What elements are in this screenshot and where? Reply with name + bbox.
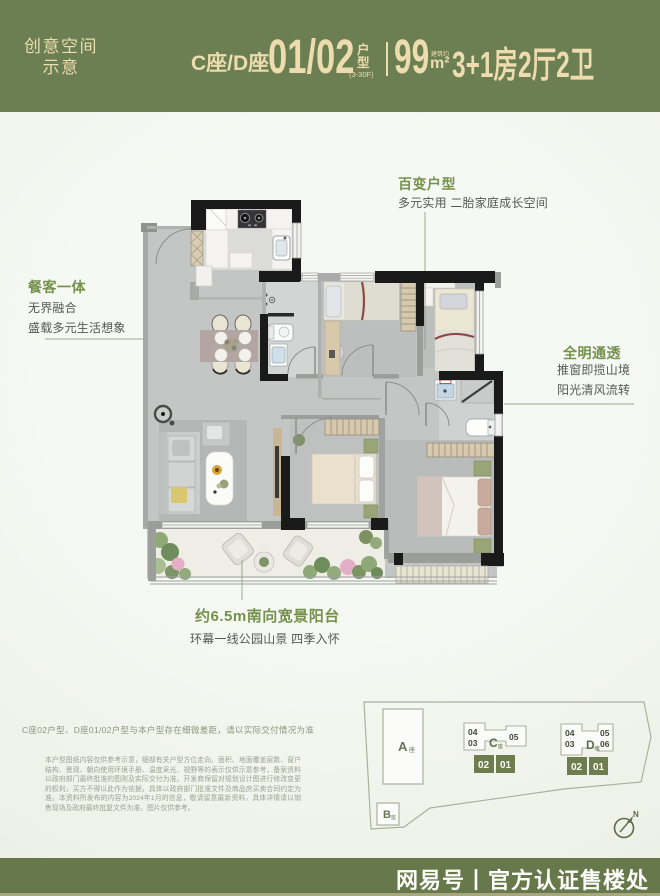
svg-text:B: B [383,809,391,821]
svg-text:A: A [398,739,408,754]
svg-text:03: 03 [565,739,575,749]
svg-text:02: 02 [478,760,490,771]
svg-text:04: 04 [468,727,478,737]
svg-text:06: 06 [600,739,610,749]
svg-text:N: N [633,810,639,819]
svg-text:04: 04 [565,728,575,738]
svg-text:02: 02 [571,762,583,773]
svg-text:01: 01 [593,762,605,773]
svg-text:座: 座 [498,743,503,750]
svg-text:C: C [489,736,498,750]
svg-text:座: 座 [391,814,396,821]
svg-text:03: 03 [468,738,478,748]
svg-text:05: 05 [509,732,519,742]
svg-text:D: D [586,738,595,752]
svg-text:01: 01 [500,760,512,771]
svg-text:座: 座 [409,746,415,754]
svg-text:05: 05 [600,728,610,738]
